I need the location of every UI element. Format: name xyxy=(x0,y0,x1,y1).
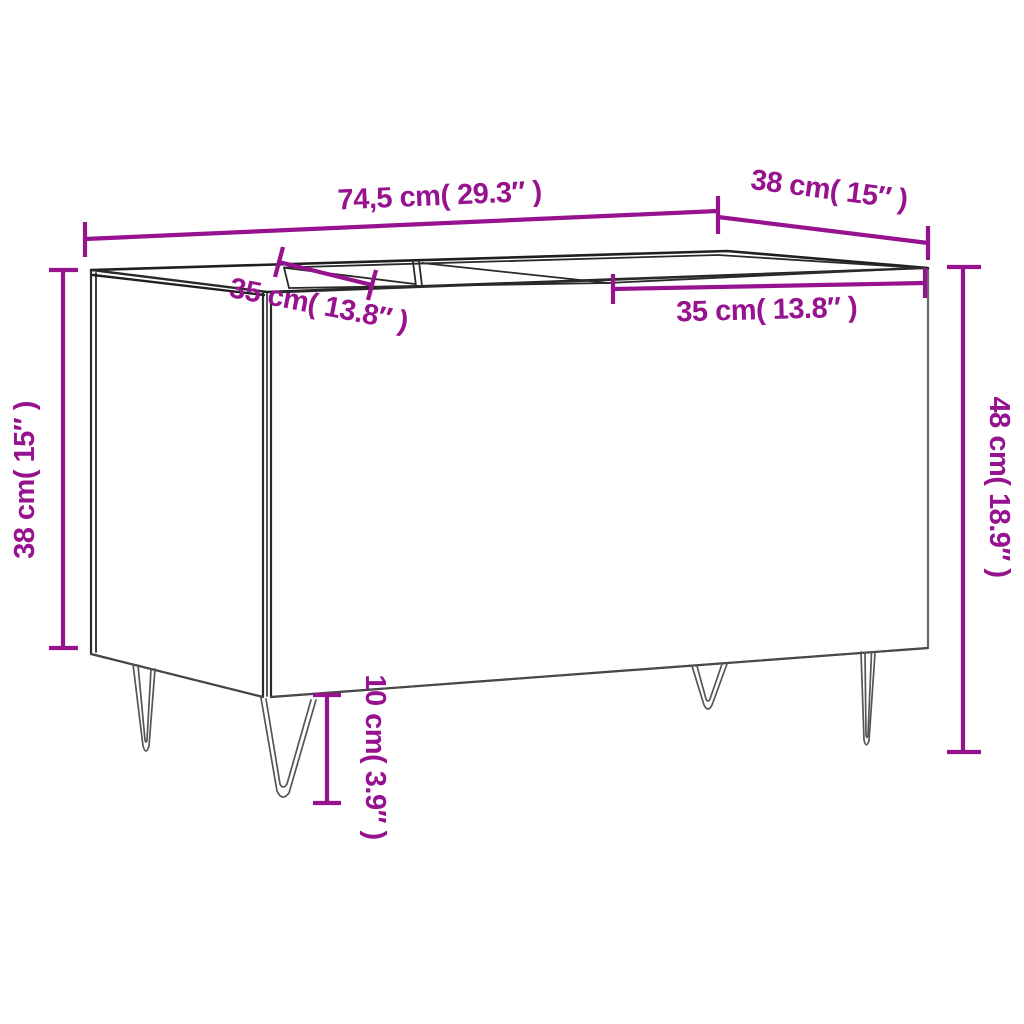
dim-label-depth: 38 cm( 15″ ) xyxy=(749,164,910,216)
dim-label-compartment-right: 35 cm( 13.8″ ) xyxy=(676,292,858,329)
hairpin-leg-back-right xyxy=(692,664,727,709)
dim-label-leg-height: 10 cm( 3.9″ ) xyxy=(359,674,391,839)
cabinet-side-panel xyxy=(91,270,263,697)
dim-label-overall-width: 74,5 cm( 29.3″ ) xyxy=(337,176,542,217)
cabinet-drawing xyxy=(91,251,928,797)
hairpin-leg-front-left xyxy=(261,698,316,797)
dim-label-height-right: 48 cm( 18.9″ ) xyxy=(983,397,1015,578)
cabinet-front-panel xyxy=(271,268,928,697)
dim-line-leg-height xyxy=(313,695,341,803)
dimension-diagram-canvas: 74,5 cm( 29.3″ ) 38 cm( 15″ ) 38 cm( 15″… xyxy=(0,0,1024,1024)
hairpin-leg-back-left xyxy=(133,664,155,751)
hairpin-leg-front-right xyxy=(861,652,875,745)
record-cabinet-dimension-diagram: 74,5 cm( 29.3″ ) 38 cm( 15″ ) 38 cm( 15″… xyxy=(0,0,1024,1024)
dim-line-height-right xyxy=(947,267,981,752)
dim-label-height-left: 38 cm( 15″ ) xyxy=(9,401,41,559)
dim-line-height-left xyxy=(49,270,78,648)
